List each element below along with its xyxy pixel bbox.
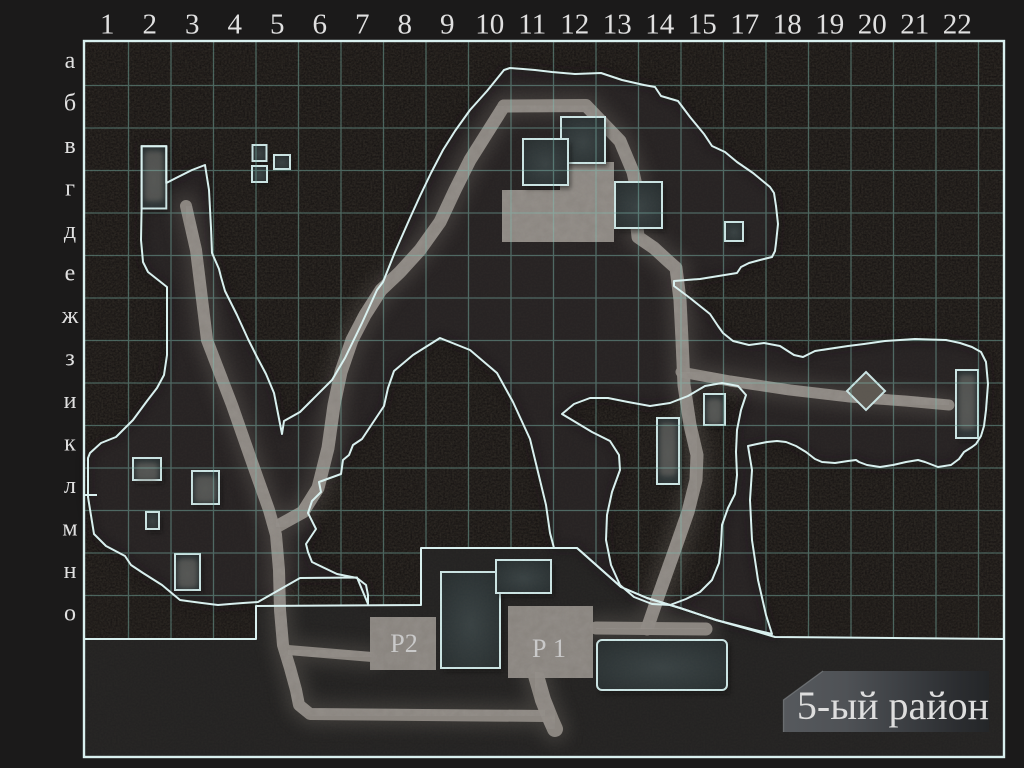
svg-text:19: 19 (815, 9, 844, 41)
svg-text:10: 10 (475, 9, 504, 41)
svg-text:17: 17 (730, 9, 759, 41)
svg-text:Р 1: Р 1 (532, 634, 566, 663)
svg-text:13: 13 (603, 9, 632, 41)
svg-text:1: 1 (100, 9, 115, 41)
svg-text:и: и (64, 388, 77, 414)
svg-text:а: а (65, 48, 76, 74)
svg-text:14: 14 (645, 9, 675, 41)
svg-text:21: 21 (900, 9, 929, 41)
svg-text:8: 8 (398, 9, 413, 41)
svg-text:ж: ж (61, 303, 79, 329)
svg-text:9: 9 (440, 9, 455, 41)
svg-text:2: 2 (143, 9, 158, 41)
svg-text:о: о (64, 601, 76, 627)
svg-text:л: л (64, 473, 76, 499)
svg-text:д: д (64, 218, 76, 244)
svg-text:5: 5 (270, 9, 285, 41)
svg-text:Р2: Р2 (390, 629, 417, 658)
svg-text:г: г (65, 176, 75, 202)
svg-text:н: н (64, 558, 77, 584)
svg-text:3: 3 (185, 9, 200, 41)
svg-text:18: 18 (773, 9, 802, 41)
svg-text:з: з (65, 346, 74, 372)
svg-text:15: 15 (688, 9, 717, 41)
svg-text:7: 7 (355, 9, 370, 41)
svg-text:б: б (64, 91, 76, 117)
svg-text:к: к (64, 431, 76, 457)
svg-text:е: е (65, 261, 76, 287)
svg-text:в: в (64, 133, 75, 159)
svg-text:22: 22 (943, 9, 972, 41)
svg-text:12: 12 (560, 9, 589, 41)
svg-text:6: 6 (313, 9, 328, 41)
svg-text:20: 20 (858, 9, 887, 41)
svg-text:4: 4 (228, 9, 243, 41)
svg-text:11: 11 (518, 9, 546, 41)
svg-text:5-ый район: 5-ый район (797, 683, 989, 728)
svg-text:м: м (62, 516, 77, 542)
